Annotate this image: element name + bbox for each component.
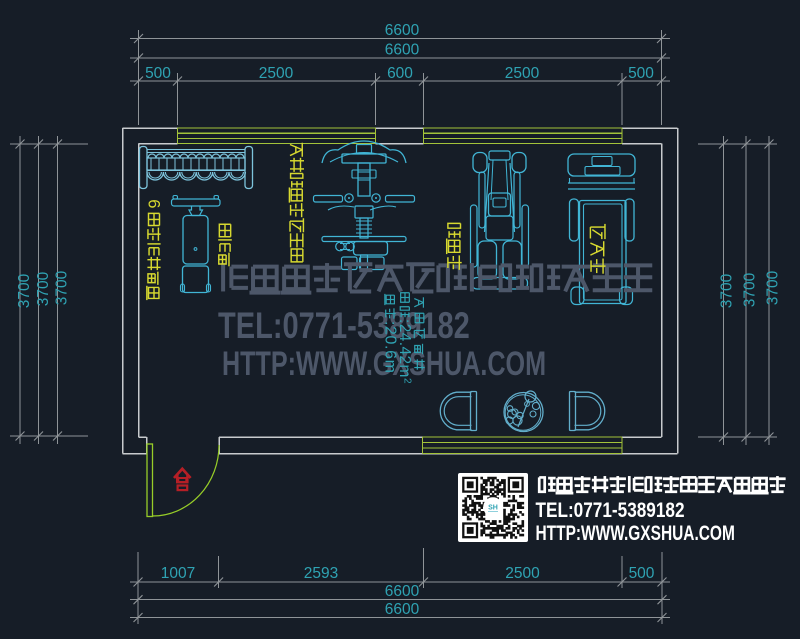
svg-text:3700: 3700	[54, 270, 71, 305]
svg-text:3700: 3700	[765, 270, 782, 305]
svg-text:TEL:0771-5389182: TEL:0771-5389182	[536, 498, 685, 522]
svg-text:TEL:0771-5389182: TEL:0771-5389182	[218, 306, 470, 347]
svg-text:HTTP:WWW.GXSHUA.COM: HTTP:WWW.GXSHUA.COM	[536, 520, 735, 544]
svg-text:1007: 1007	[161, 565, 195, 582]
svg-text:2: 2	[402, 378, 413, 384]
svg-text:500: 500	[629, 565, 655, 582]
svg-text:SH: SH	[488, 505, 498, 512]
svg-text:2500: 2500	[505, 65, 540, 82]
svg-text:500: 500	[145, 65, 171, 82]
svg-text:3700: 3700	[719, 273, 736, 308]
svg-text:6600: 6600	[385, 42, 420, 59]
svg-text::20.6m: :20.6m	[382, 321, 399, 374]
svg-text:500: 500	[628, 65, 654, 82]
svg-text:2500: 2500	[505, 565, 540, 582]
svg-text:600: 600	[387, 65, 413, 82]
svg-text:3700: 3700	[16, 273, 33, 308]
svg-text:6600: 6600	[385, 601, 420, 618]
svg-text:3700: 3700	[35, 271, 52, 306]
svg-text:6600: 6600	[385, 22, 420, 39]
svg-text:2593: 2593	[304, 565, 338, 582]
svg-text:3700: 3700	[741, 272, 758, 307]
svg-text:6600: 6600	[385, 583, 420, 600]
svg-text:2500: 2500	[259, 65, 294, 82]
svg-text:6: 6	[144, 199, 162, 208]
